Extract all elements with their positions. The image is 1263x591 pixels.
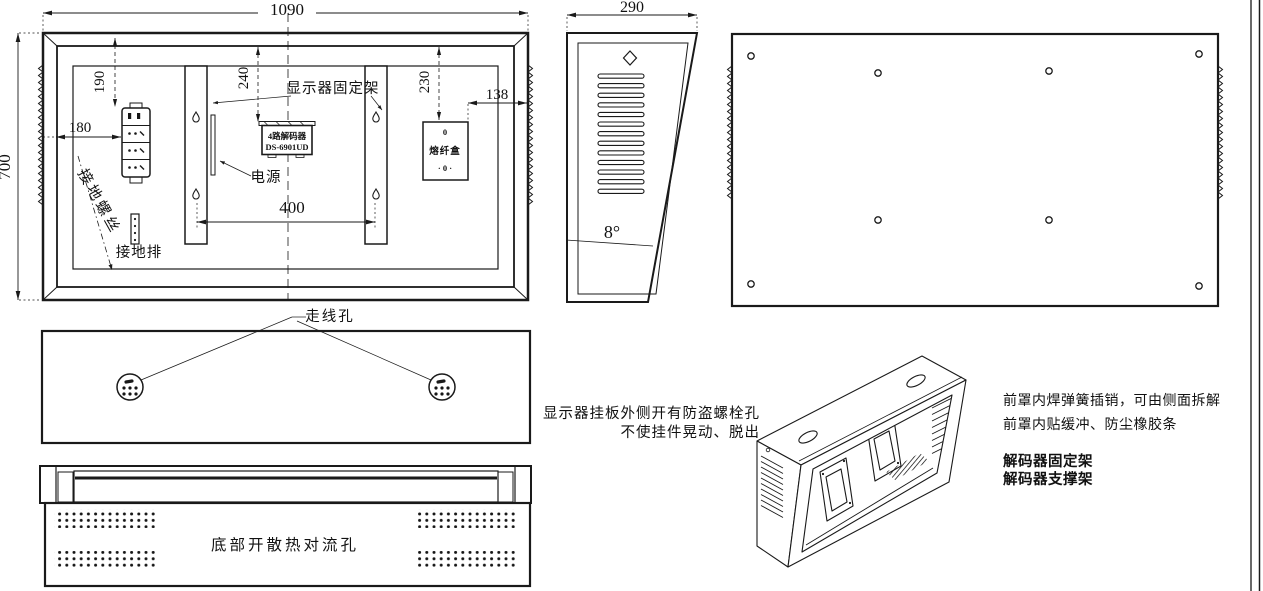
fiber-box-top-mark: 0: [443, 127, 447, 137]
note-left-line2: 不使挂件晃动、脱出: [621, 424, 761, 441]
dim-230: 230: [417, 71, 433, 94]
dim-700: 700: [0, 154, 14, 180]
dim-400: 400: [279, 198, 305, 217]
vent-grid-top-left: [54, 509, 155, 528]
mount-bracket-left: [185, 66, 207, 244]
note-right-line2: 前罩内贴缓冲、防尘橡胶条: [1003, 416, 1177, 433]
power-leader: [220, 161, 251, 176]
note-right-line1: 前罩内焊弹簧插销，可由侧面拆解: [1003, 392, 1221, 409]
plate-outline: [42, 331, 530, 443]
angle-label: 8°: [604, 222, 620, 242]
side-outline: [567, 33, 697, 302]
label-cable-hole: 走线孔: [305, 308, 355, 325]
front-view: 4路解码器 DS-6901UD 0 熔纤盒 · 0 ·: [0, 0, 533, 300]
top-plate-view: 走线孔: [42, 308, 530, 443]
power-raceway-bar: [211, 115, 215, 175]
dim-138: 138: [486, 87, 509, 103]
note-decoder-support: 解码器支撑架: [1003, 470, 1093, 488]
dim-240: 240: [236, 67, 252, 90]
ground-bar: [131, 214, 139, 244]
bracket-leader-left: [213, 96, 291, 103]
vent-grid-top-right: [417, 509, 518, 528]
dim-180: 180: [69, 120, 92, 136]
dim-1090: 1090: [270, 0, 304, 19]
label-display-bracket: 显示器固定架: [287, 80, 380, 97]
label-bottom-vent: 底部开散热对流孔: [211, 536, 359, 554]
decoder-box: 4路解码器 DS-6901UD: [259, 122, 315, 158]
fiber-box-name: 熔纤盒: [429, 145, 461, 157]
vent-grid-bottom-left: [54, 551, 155, 570]
vent-grid-bottom-right: [417, 551, 518, 570]
back-view: [728, 34, 1223, 306]
engineering-drawing-sheet: 4路解码器 DS-6901UD 0 熔纤盒 · 0 ·: [0, 0, 1263, 591]
dim-290: 290: [620, 0, 644, 16]
decoder-model: DS-6901UD: [266, 142, 309, 152]
label-ground-screw: 接地螺丝: [74, 166, 124, 237]
side-view: 8° 290: [566, 0, 697, 302]
isometric-view: [757, 356, 966, 567]
decoder-name: 4路解码器: [268, 131, 307, 141]
label-power: 电源: [251, 169, 282, 186]
note-decoder-bracket: 解码器固定架: [1003, 452, 1093, 470]
power-strip: [122, 103, 150, 183]
drawing-canvas: 4路解码器 DS-6901UD 0 熔纤盒 · 0 ·: [0, 0, 1263, 591]
dim-190: 190: [92, 71, 108, 94]
sheet-border: [1251, 0, 1260, 591]
note-left-line1: 显示器挂板外侧开有防盗螺栓孔: [543, 404, 760, 422]
back-panel-outline: [732, 34, 1218, 306]
fiber-splice-box: 0 熔纤盒 · 0 ·: [423, 122, 468, 180]
fiber-box-bottom-mark: · 0 ·: [438, 163, 452, 173]
bottom-view: 底部开散热对流孔: [40, 466, 531, 586]
label-ground-bar: 接地排: [116, 244, 163, 261]
